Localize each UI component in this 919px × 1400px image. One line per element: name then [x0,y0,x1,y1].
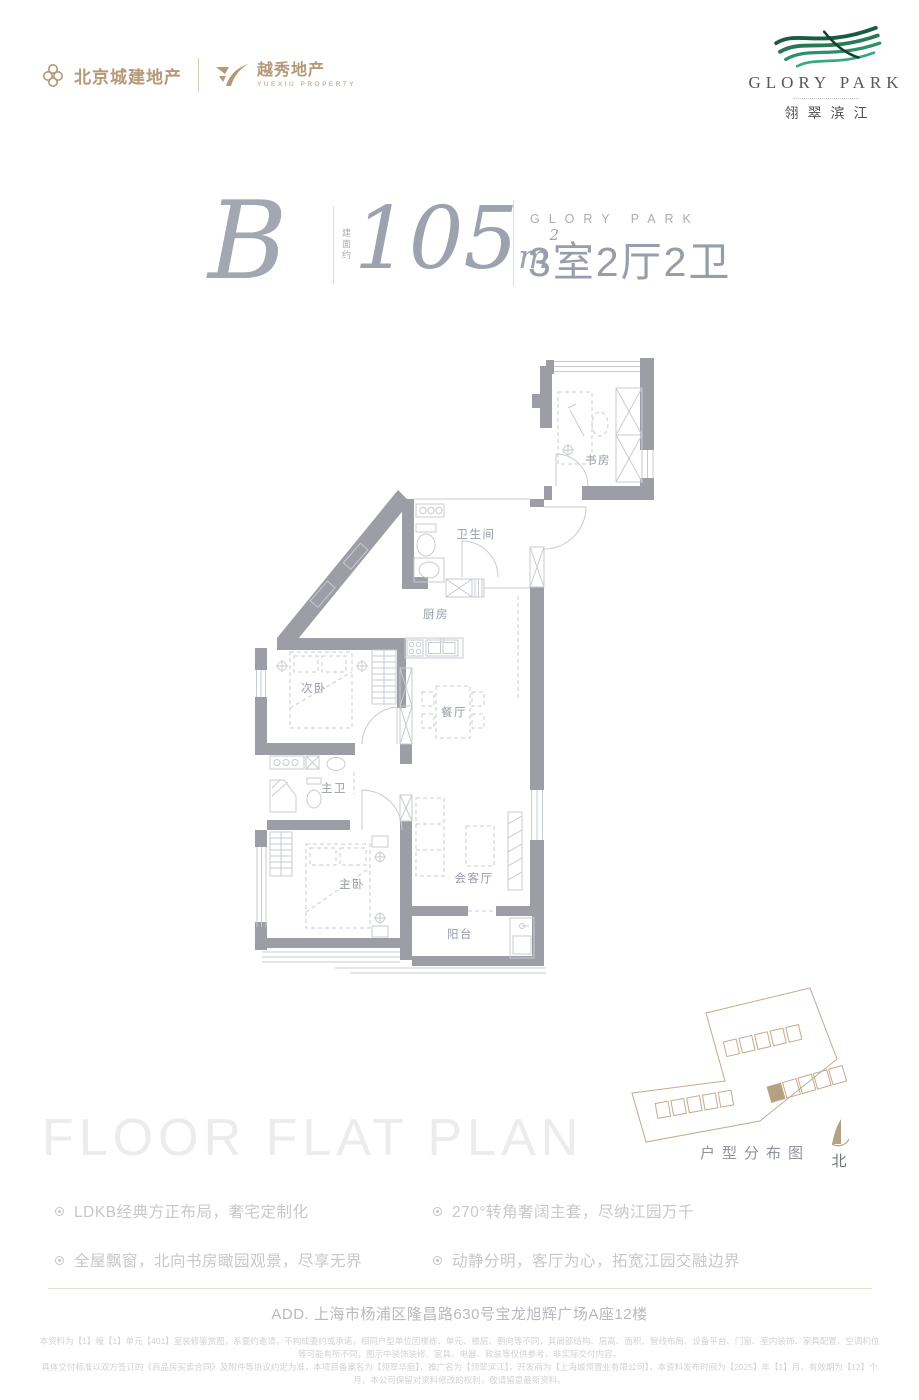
floor-plan: 书房 卫生间 厨房 次卧 餐厅 主卫 主卧 会客厅 阳台 [250,352,670,977]
bucg-knot-icon [40,62,66,88]
label-master-bedroom: 主卧 [339,878,365,891]
highlighted-unit [767,1083,785,1102]
title-divider-2 [513,200,514,286]
floor-plan-furniture [290,392,608,928]
bullet-icon [433,1256,442,1265]
feature-list: LDKB经典方正布局，奢宅定制化 270°转角奢阔主套，尽纳江园万千 全屋飘窗，… [55,1200,879,1271]
bullet-icon [55,1207,64,1216]
label-study: 书房 [585,454,611,467]
bullet-icon [433,1207,442,1216]
glory-park-waves-icon [767,24,885,70]
glory-park-cn-name: 翎翠滨江 [776,103,877,123]
area-note: 建面约 [341,228,350,261]
label-second-bedroom: 次卧 [301,681,327,695]
feature-text: 全屋飘窗，北向书房瞰园观景，尽享无界 [74,1249,362,1271]
site-plan-caption: 户型分布图 [700,1142,810,1163]
title-brand-en: GLORY PARK [530,212,700,226]
feature-item: 全屋飘窗，北向书房瞰园观景，尽享无界 [55,1249,433,1271]
label-kitchen: 厨房 [423,608,449,621]
floor-flat-plan-watermark: FLOOR FLAT PLAN [42,1108,583,1168]
north-label: 北 [831,1150,846,1171]
label-bathroom: 卫生间 [457,527,496,541]
feature-text: 动静分明，客厅为心，拓宽江园交融边界 [452,1249,740,1271]
brand-yuexiu-label: 越秀地产 [257,62,356,80]
brand-left: 北京城建地产 越秀地产 YUEXIU PROPERTY [40,58,356,92]
unit-letter: B [208,188,287,296]
glory-park-wordmark: GLORY PARK [748,73,903,93]
site-plan [628,985,908,1145]
logo-flourish [793,98,859,99]
bullet-icon [55,1256,64,1265]
feature-item: 270°转角奢阔主套，尽纳江园万千 [433,1200,879,1222]
address-line: ADD. 上海市杨浦区隆昌路630号宝龙旭辉广场A座12楼 [0,1303,919,1324]
feature-text: 270°转角奢阔主套，尽纳江园万千 [452,1200,694,1222]
brand-right: GLORY PARK 翎翠滨江 [748,24,904,123]
feature-item: 动静分明，客厅为心，拓宽江园交融边界 [433,1249,879,1271]
label-master-bath: 主卫 [321,782,347,795]
disclaimer: 本资料为【1】幢【1】单元【401】室装修鉴赏图，系要约邀请，不构成要约或承诺，… [38,1335,881,1387]
feature-text: LDKB经典方正布局，奢宅定制化 [74,1200,309,1222]
feature-item: LDKB经典方正布局，奢宅定制化 [55,1200,433,1222]
label-balcony: 阳台 [447,927,473,941]
title-divider-1 [333,206,334,284]
unit-layout: 3室2厅2卫 [528,228,731,288]
footer-divider [48,1288,872,1289]
brand-divider [198,58,199,92]
north-arrow-icon [826,1118,852,1148]
label-dining: 餐厅 [441,705,467,719]
label-living: 会客厅 [455,871,494,885]
compass: 北 [826,1118,852,1171]
poster-page: 北京城建地产 越秀地产 YUEXIU PROPERTY GLORY PARK [0,0,919,1400]
disclaimer-line-1: 本资料为【1】幢【1】单元【401】室装修鉴赏图，系要约邀请，不构成要约或承诺，… [38,1335,881,1361]
disclaimer-line-2: 具体交付标准以双方签订的《商品房买卖合同》及附件等协议约定为准，本项目备案名为【… [38,1361,881,1387]
room-labels: 书房 卫生间 厨房 次卧 餐厅 主卫 主卧 会客厅 阳台 [301,454,611,941]
brand-bucg-label: 北京城建地产 [74,63,182,88]
yuexiu-swoosh-icon [215,62,249,88]
brand-yuexiu-sublabel: YUEXIU PROPERTY [257,81,356,88]
